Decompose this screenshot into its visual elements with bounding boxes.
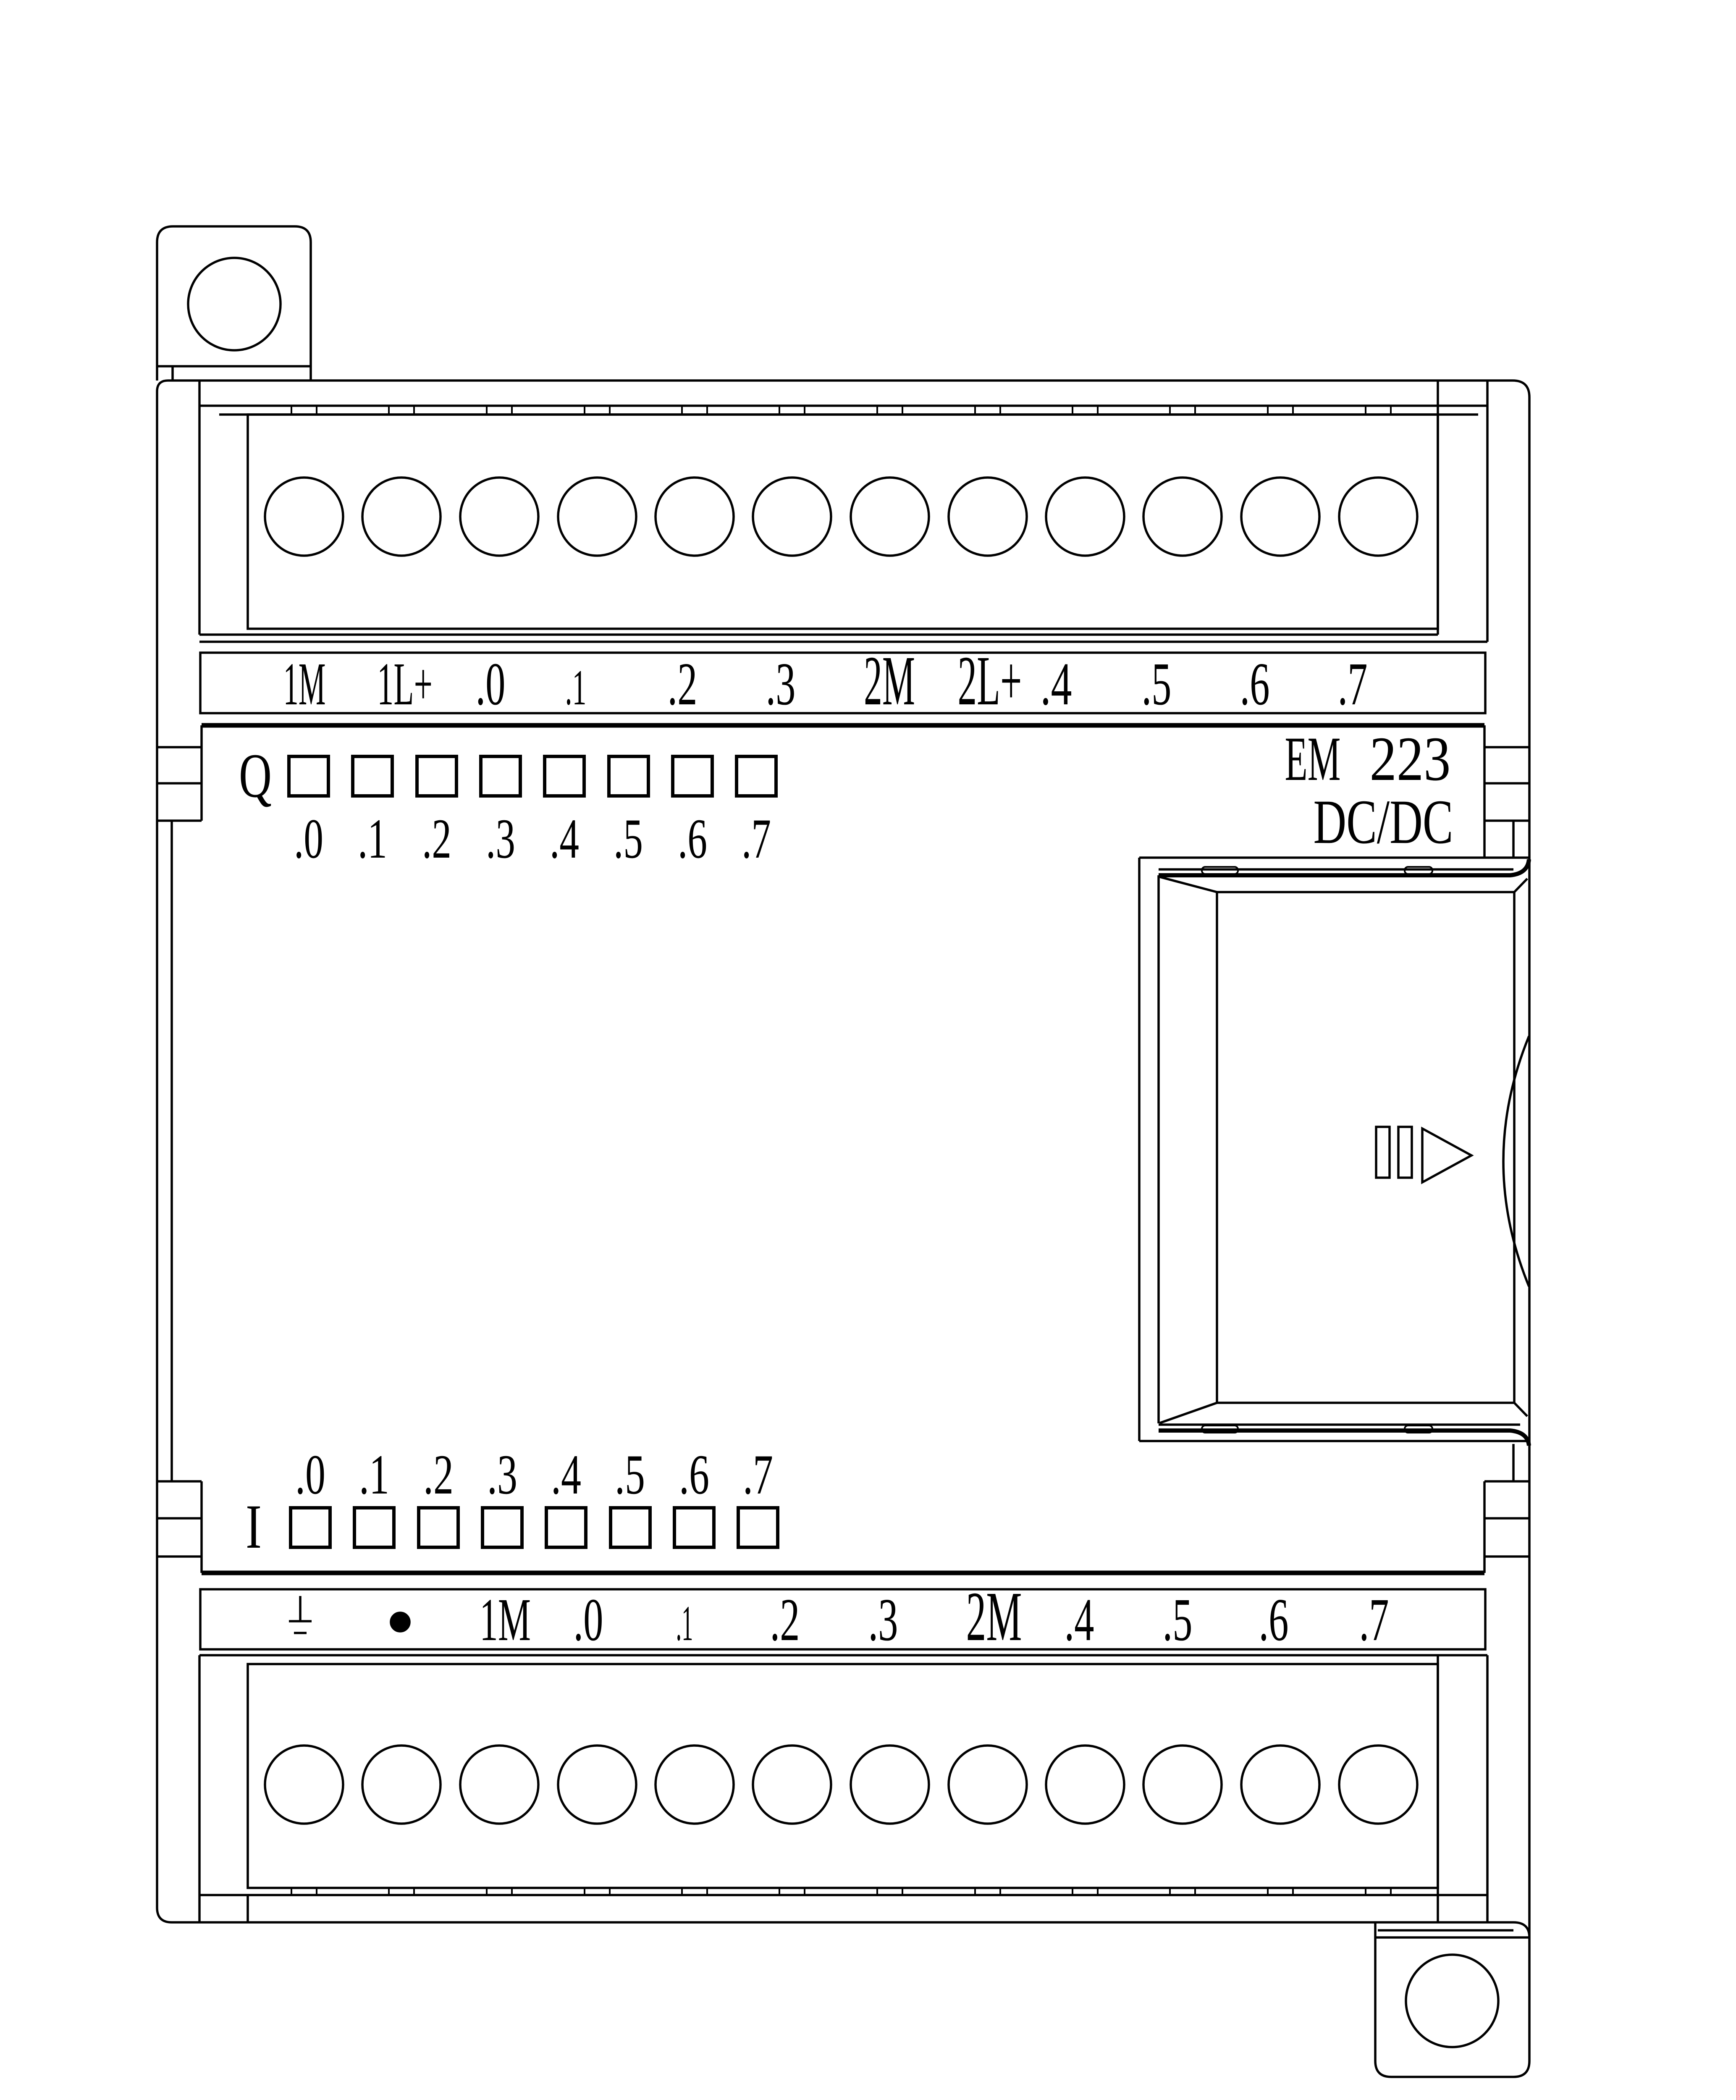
svg-text:2L+: 2L+ [958,642,1022,720]
svg-text:.3: .3 [766,651,796,718]
svg-text:.4: .4 [1041,651,1072,718]
svg-text:.3: .3 [487,1444,517,1506]
svg-text:.7: .7 [743,1444,773,1506]
svg-text:.1: .1 [358,808,387,870]
svg-text:.7: .7 [742,808,771,870]
svg-text:1M: 1M [480,1586,531,1654]
svg-text:1L+: 1L+ [377,651,433,718]
svg-text:.1: .1 [565,659,587,715]
svg-text:.0: .0 [574,1586,603,1654]
svg-text:.7: .7 [1338,651,1368,718]
svg-text:.6: .6 [678,808,707,870]
svg-text:.4: .4 [1065,1586,1094,1654]
svg-text:1M: 1M [283,651,326,718]
svg-text:EM: EM [1285,724,1341,794]
svg-text:.6: .6 [1259,1586,1289,1654]
svg-text:.0: .0 [295,1444,325,1506]
svg-text:2M: 2M [966,1578,1022,1656]
svg-text:.5: .5 [1142,651,1172,718]
svg-text:.0: .0 [294,808,323,870]
svg-text:.5: .5 [1163,1586,1193,1654]
svg-text:.4: .4 [550,808,579,870]
svg-text:Q: Q [239,741,272,811]
svg-text:.3: .3 [486,808,515,870]
svg-text:.6: .6 [679,1444,709,1506]
svg-text:.2: .2 [422,808,451,870]
svg-text:.2: .2 [423,1444,454,1506]
svg-text:.2: .2 [668,651,698,718]
svg-text:223: 223 [1370,724,1451,794]
svg-text:.1: .1 [359,1444,389,1506]
svg-text:DC/DC: DC/DC [1314,787,1453,857]
svg-text:2M: 2M [864,642,915,720]
svg-text:.6: .6 [1240,651,1270,718]
svg-text:.4: .4 [551,1444,581,1506]
svg-text:.5: .5 [615,1444,645,1506]
svg-text:.3: .3 [868,1586,898,1654]
svg-text:.0: .0 [476,651,506,718]
svg-text:.5: .5 [614,808,643,870]
svg-text:I: I [246,1492,262,1562]
svg-text:.2: .2 [770,1586,800,1654]
svg-text:.7: .7 [1359,1586,1389,1654]
svg-text:.1: .1 [676,1595,693,1651]
